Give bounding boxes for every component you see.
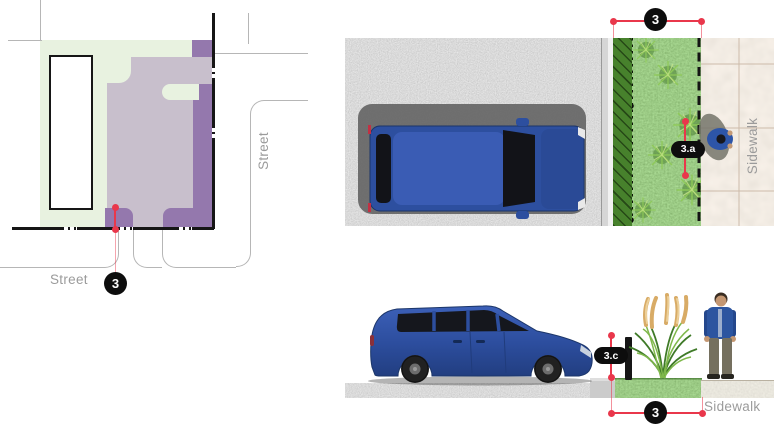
leader-line bbox=[115, 229, 116, 272]
driveway-flare bbox=[162, 253, 177, 268]
curb-line bbox=[40, 0, 41, 40]
curb-corner bbox=[236, 252, 251, 267]
frontage-strip-bottom-right bbox=[163, 208, 213, 228]
sidewalk-label-plan: Sidewalk bbox=[744, 116, 760, 176]
dimension-dot bbox=[112, 226, 119, 233]
driveway-edge bbox=[118, 229, 119, 253]
curb-strip bbox=[601, 38, 608, 226]
pedestrian-elevation bbox=[704, 293, 736, 380]
elevation-width-badge: 3 bbox=[644, 401, 667, 424]
frontage-strip-bottom-left bbox=[105, 208, 133, 228]
extension-line bbox=[611, 379, 612, 413]
street-line-right bbox=[212, 13, 215, 229]
sidewalk-slab bbox=[701, 380, 774, 398]
driveway-flare bbox=[104, 253, 119, 268]
curb-line bbox=[250, 114, 251, 252]
driveway-gap bbox=[177, 227, 192, 230]
building-footprint bbox=[49, 55, 93, 210]
dimension-dot bbox=[608, 332, 615, 339]
curb-line bbox=[176, 267, 236, 268]
curb-line bbox=[215, 53, 308, 54]
planting-band-step bbox=[93, 55, 131, 83]
plan-width-badge: 3 bbox=[644, 8, 667, 31]
curb-line bbox=[147, 267, 162, 268]
driveway-gap bbox=[118, 227, 133, 230]
plan-view-photo bbox=[345, 38, 774, 226]
frontage-strip-right bbox=[193, 84, 213, 228]
dimension-dot bbox=[698, 18, 705, 25]
extension-line bbox=[701, 24, 702, 38]
dimension-dot bbox=[682, 172, 689, 179]
hatch-strip bbox=[613, 38, 632, 226]
dimension-dot bbox=[610, 18, 617, 25]
dimension-dot bbox=[699, 410, 706, 417]
extension-line bbox=[613, 24, 614, 38]
dimension-dot bbox=[112, 204, 119, 211]
car-top-view bbox=[368, 118, 585, 219]
driveway-gap bbox=[212, 66, 215, 78]
curb-line bbox=[264, 100, 308, 101]
dimension-dot bbox=[608, 374, 615, 381]
driveway-gap bbox=[62, 227, 77, 230]
street-label-bottom: Street bbox=[50, 272, 88, 287]
driveway-edge bbox=[162, 229, 163, 253]
planting-notch bbox=[162, 84, 199, 100]
planting-depth-badge: 3.a bbox=[671, 141, 705, 158]
driveway-flare bbox=[133, 253, 148, 268]
curb-line bbox=[8, 40, 42, 41]
screen-height-badge: 3.c bbox=[594, 347, 628, 364]
frontage-strip-top bbox=[192, 40, 212, 57]
grass-strip bbox=[615, 378, 702, 398]
street-label-right: Street bbox=[255, 128, 271, 174]
plan-view-graphic bbox=[345, 38, 774, 226]
setback-badge: 3 bbox=[104, 272, 127, 295]
driveway-edge bbox=[133, 229, 134, 253]
dimension-dot bbox=[682, 118, 689, 125]
sidewalk-label-elevation: Sidewalk bbox=[704, 399, 760, 414]
ornamental-grass-plant bbox=[629, 295, 697, 378]
curb-line bbox=[0, 267, 104, 268]
curb-corner bbox=[250, 100, 265, 115]
van-side-view bbox=[370, 306, 592, 383]
setback-diagram-figure: 3 Street Street bbox=[0, 0, 774, 427]
dimension-dot bbox=[608, 410, 615, 417]
curb-line bbox=[248, 13, 249, 44]
driveway-gap bbox=[212, 126, 215, 140]
